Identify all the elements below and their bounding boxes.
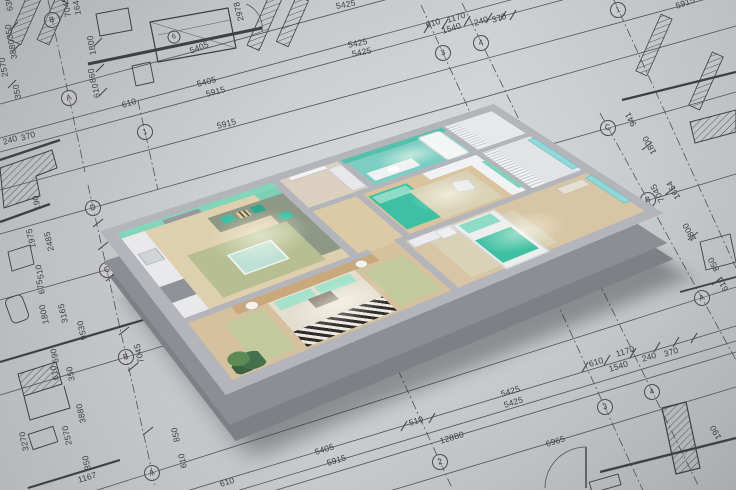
blueprint-scene: 6303503880257035070451641800860610610240… bbox=[0, 0, 736, 490]
apartment-model bbox=[0, 0, 736, 490]
